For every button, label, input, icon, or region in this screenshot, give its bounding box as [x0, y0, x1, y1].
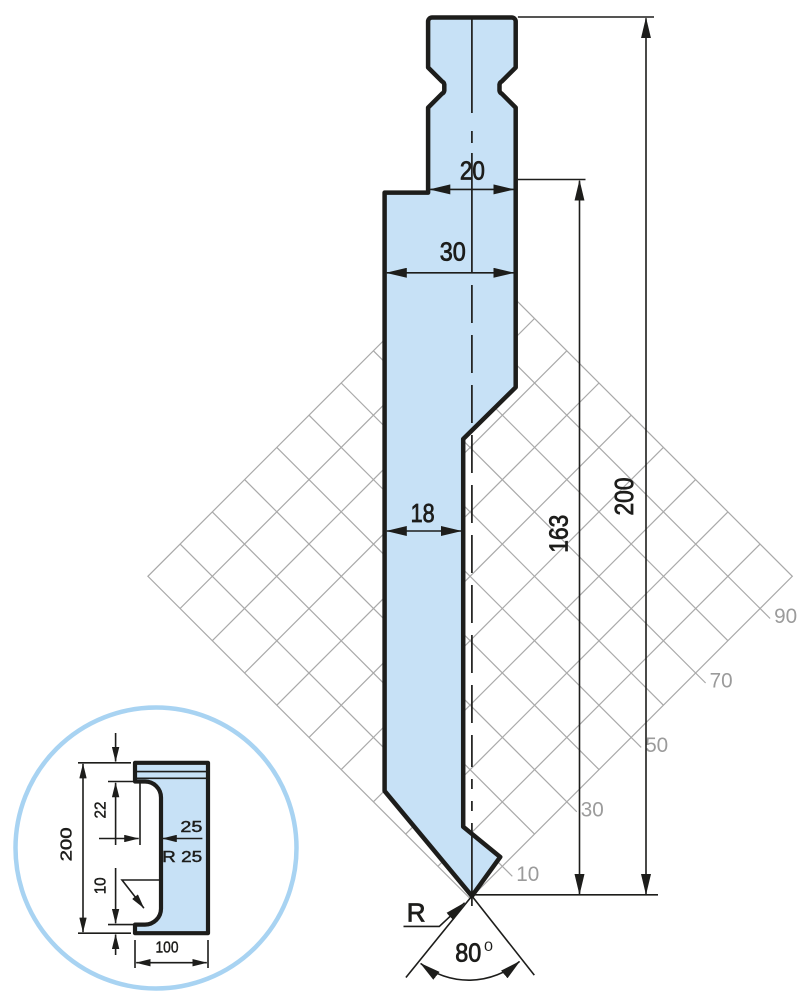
svg-text:200: 200 — [609, 478, 639, 516]
svg-text:30: 30 — [581, 798, 604, 821]
svg-text:100: 100 — [156, 940, 179, 957]
svg-text:0: 0 — [484, 938, 493, 954]
svg-text:22: 22 — [92, 802, 109, 819]
svg-text:R: R — [407, 898, 426, 928]
svg-text:70: 70 — [710, 670, 733, 693]
svg-text:30: 30 — [440, 237, 466, 267]
svg-text:18: 18 — [411, 498, 435, 528]
svg-text:10: 10 — [92, 877, 109, 894]
svg-text:163: 163 — [544, 515, 574, 553]
svg-text:25: 25 — [180, 819, 202, 836]
svg-text:50: 50 — [645, 734, 668, 757]
svg-text:R 25: R 25 — [162, 849, 202, 866]
svg-text:90: 90 — [774, 605, 797, 628]
svg-text:10: 10 — [516, 863, 539, 886]
svg-text:200: 200 — [59, 827, 76, 861]
svg-text:20: 20 — [460, 156, 485, 186]
svg-text:80: 80 — [455, 938, 481, 968]
